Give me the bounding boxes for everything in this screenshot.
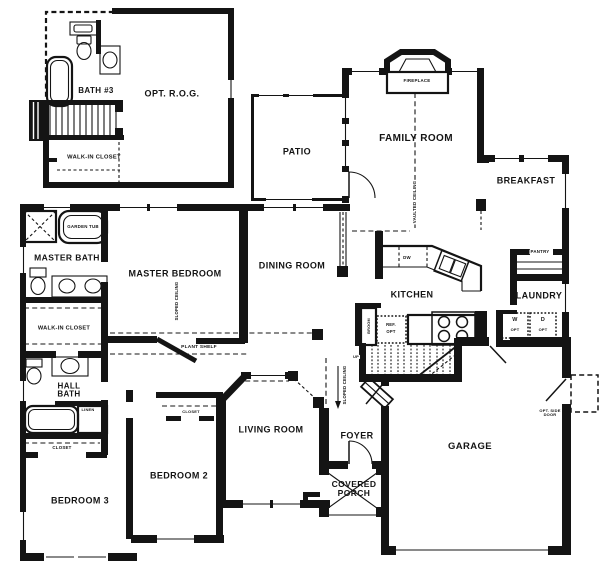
fixture-label-linen: LINEN <box>82 408 95 412</box>
main-stairs <box>335 338 462 409</box>
covered-porch-line2: PORCH <box>338 488 371 498</box>
room-label-living-room: LIVING ROOM <box>239 425 304 434</box>
fixture-label-fireplace: FIREPLACE <box>404 79 431 84</box>
note-label-sloped-ceiling-master: SLOPED CEILING <box>175 282 179 321</box>
fixture-label-garden-tub: GARDEN TUB <box>67 225 99 230</box>
room-label-closet-bed2: CLOSET <box>181 410 200 414</box>
fixture-label-dryer: D <box>541 317 545 323</box>
room-label-patio: PATIO <box>283 147 311 156</box>
floor-plan: BATH #3 OPT. R.O.G. WALK-IN CLOSET PATIO… <box>0 0 600 577</box>
note-label-opt-side-door: OPT. SIDE DOOR <box>538 409 561 417</box>
toilet <box>27 368 41 384</box>
fireplace-shape <box>387 52 448 93</box>
fixture-label-washer: W <box>512 317 517 323</box>
room-label-foyer: FOYER <box>340 431 373 440</box>
room-label-closet-bed3: CLOSET <box>52 446 71 451</box>
fixture-label-washer-opt: OPT <box>511 328 520 332</box>
upper-floor-block <box>29 8 234 188</box>
room-label-garage: GARAGE <box>448 442 492 452</box>
room-label-bedroom2: BEDROOM 2 <box>150 471 208 480</box>
room-label-master-bath: MASTER BATH <box>34 254 100 263</box>
room-label-pantry: PANTRY <box>529 250 550 255</box>
room-label-opt-rog: OPT. R.O.G. <box>145 89 200 98</box>
patio-door-arc <box>349 172 375 198</box>
fixture-label-ref-1: REF. <box>386 323 396 327</box>
note-label-plant-shelf: PLANT SHELF <box>180 344 218 349</box>
fixture-label-broom: BROOM <box>366 318 370 334</box>
room-label-hall-bath: HALL BATH <box>57 383 80 400</box>
note-label-vaulted-ceiling: VAULTED CEILING <box>413 180 418 225</box>
front-door-arc <box>349 441 372 464</box>
room-label-family-room: FAMILY ROOM <box>379 134 453 145</box>
fixture-label-dishwasher: DW <box>403 256 411 261</box>
kitchen-walls <box>337 212 487 346</box>
room-label-master-bedroom: MASTER BEDROOM <box>128 269 221 278</box>
toilet <box>31 278 45 295</box>
note-label-up: UP <box>352 355 360 359</box>
room-label-bedroom3: BEDROOM 3 <box>51 496 109 505</box>
hall-bath-line2: BATH <box>57 390 80 399</box>
room-label-kitchen: KITCHEN <box>391 290 434 299</box>
side-door-leaf <box>546 379 566 401</box>
room-label-bath3: BATH #3 <box>78 87 114 95</box>
room-label-breakfast: BREAKFAST <box>497 176 556 185</box>
hall-bath <box>20 357 108 458</box>
living-room-walls <box>219 371 330 509</box>
garage-entry-door-leaf <box>490 346 506 363</box>
room-label-walk-in-closet-upper: WALK-IN CLOSET <box>67 154 121 160</box>
room-label-covered-porch: COVERED PORCH <box>332 480 377 498</box>
fixture-label-ref-2: OPT <box>386 330 395 334</box>
fixture-label-dryer-opt: OPT <box>539 328 548 332</box>
double-vanity <box>52 276 107 297</box>
sloped-ceiling-arrow <box>335 401 341 409</box>
room-label-walk-in-closet-master: WALK-IN CLOSET <box>38 325 90 331</box>
opt-side-door-line2: DOOR <box>544 413 557 418</box>
room-label-laundry: LAUNDRY <box>516 291 562 300</box>
opt-side-door-box <box>571 375 598 412</box>
note-label-sloped-ceiling-stairs: SLOPED CEILING <box>343 365 347 406</box>
room-label-dining-room: DINING ROOM <box>259 261 325 270</box>
master-door-leaf <box>157 339 196 361</box>
